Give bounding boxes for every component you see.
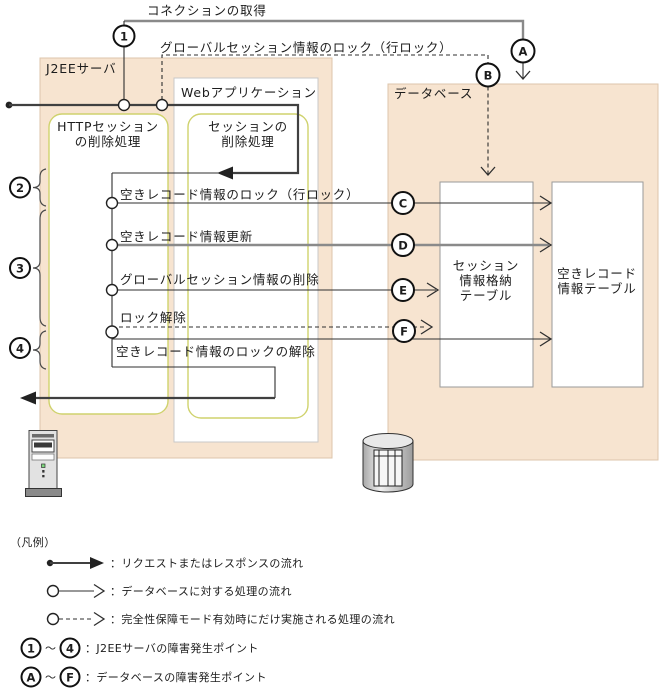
row-e-origin-circle <box>107 285 118 296</box>
row-c-origin-circle <box>107 198 118 209</box>
free-record-table-label-1: 空きレコード <box>557 266 637 281</box>
point-e-letter: E <box>399 284 407 298</box>
free-record-table: 空きレコード 情報テーブル <box>552 182 643 387</box>
point-b-letter: B <box>484 69 493 83</box>
http-session-process-box: HTTPセッション の削除処理 <box>49 114 168 414</box>
session-delete-process-box: セッションの 削除処理 <box>188 114 308 418</box>
legend-title: （凡例） <box>10 535 56 549</box>
session-table: セッション 情報格納 テーブル <box>440 182 533 387</box>
lock-release-label: ロック解除 <box>120 310 187 325</box>
row-f-origin-circle <box>106 326 118 338</box>
connection-label: コネクションの取得 <box>147 3 267 18</box>
session-delete-box <box>188 114 308 418</box>
session-table-label-2: 情報格納 <box>459 273 512 288</box>
legend-tilde-1: ～ <box>45 642 56 655</box>
legend-point-4-number: 4 <box>66 642 74 656</box>
legend-db-chevron <box>94 585 104 598</box>
row-d-origin-circle <box>107 240 118 251</box>
database-label: データベース <box>394 86 473 101</box>
global-session-lock-label: グローバルセッション情報のロック（行ロック） <box>160 40 452 55</box>
request-line-circle-1 <box>119 100 130 111</box>
legend-point-a-letter: A <box>27 671 36 685</box>
legend-point-f-letter: F <box>66 671 74 685</box>
point-2-number: 2 <box>16 181 24 195</box>
web-application-label: Webアプリケーション <box>181 85 317 100</box>
point-f-letter: F <box>400 325 408 339</box>
connection-line <box>124 21 523 40</box>
legend-integrity-label: ：完全性保障モード有効時にだけ実施される処理の流れ <box>110 612 395 626</box>
legend-integrity-chevron <box>94 613 104 626</box>
legend-tilde-2: ～ <box>45 671 56 684</box>
free-record-lock-release-label: 空きレコード情報のロックの解除 <box>116 344 316 359</box>
session-delete-label-2: 削除処理 <box>221 134 274 149</box>
legend: （凡例） ：リクエストまたはレスポンスの流れ ：データベースに対する処理の流れ … <box>10 535 395 687</box>
global-session-delete-label: グローバルセッション情報の削除 <box>120 272 319 287</box>
server-icon <box>26 431 62 497</box>
http-session-label-2: の削除処理 <box>75 134 142 149</box>
j2ee-server-label: J2EEサーバ <box>45 61 116 76</box>
point-3-number: 3 <box>16 262 24 276</box>
legend-j2ee-points-label: ：J2EEサーバの障害発生ポイント <box>85 641 259 655</box>
request-line-circle-2 <box>157 100 168 111</box>
legend-db-circle <box>48 586 59 597</box>
legend-point-1-number: 1 <box>27 642 35 656</box>
free-record-table-label-2: 情報テーブル <box>557 281 636 296</box>
database-cylinder-icon <box>363 434 413 493</box>
point-a-letter: A <box>519 45 528 59</box>
session-deletion-flow-diagram: J2EEサーバ データベース Webアプリケーション HTTPセッション の削除… <box>0 0 660 697</box>
legend-db-points-label: ：データベースの障害発生ポイント <box>85 670 267 684</box>
legend-db-label: ：データベースに対する処理の流れ <box>110 584 292 598</box>
point-c-letter: C <box>399 197 407 211</box>
legend-request-label: ：リクエストまたはレスポンスの流れ <box>110 556 304 570</box>
diagram-canvas: J2EEサーバ データベース Webアプリケーション HTTPセッション の削除… <box>0 0 660 697</box>
session-delete-label-1: セッションの <box>208 119 288 134</box>
free-record-lock-label: 空きレコード情報のロック（行ロック） <box>120 187 359 202</box>
point-1-number: 1 <box>120 30 128 44</box>
left-arrowhead-response <box>20 392 36 405</box>
legend-request-arrowhead <box>90 557 104 569</box>
session-table-label-1: セッション <box>453 258 520 273</box>
legend-integrity-circle <box>48 614 59 625</box>
point-d-letter: D <box>398 239 408 253</box>
http-session-label-1: HTTPセッション <box>57 119 159 134</box>
point-4-number: 4 <box>16 342 24 356</box>
free-record-update-label: 空きレコード情報更新 <box>120 229 253 244</box>
session-table-label-3: テーブル <box>460 288 512 303</box>
http-session-box <box>49 114 168 414</box>
